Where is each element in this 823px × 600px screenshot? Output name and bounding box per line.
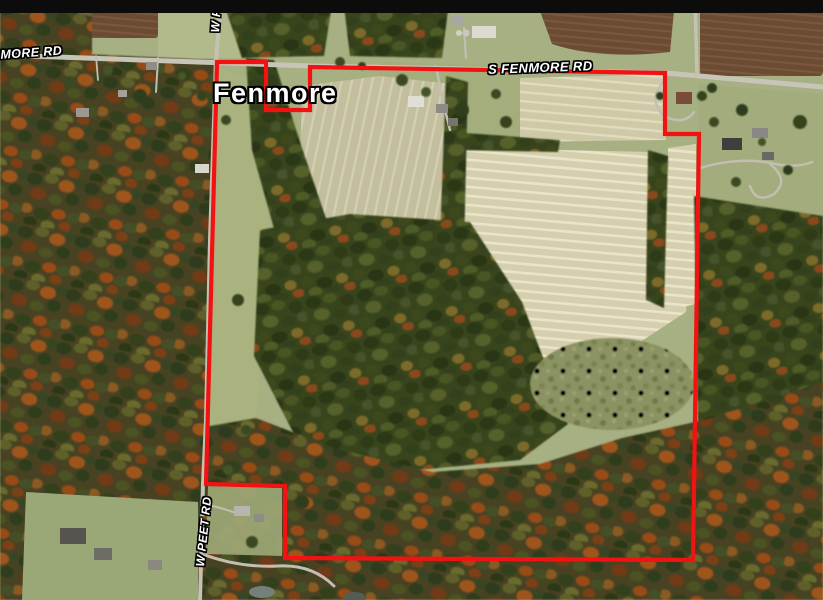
place-label-fenmore: Fenmore [213,80,338,107]
screenshot-root: NMORE RD W PEET Fenmore S FENMORE RD W P… [0,0,823,600]
road-label-s-fenmore-rd: S FENMORE RD [488,59,593,76]
letterbox-top-bar [0,0,823,13]
satellite-map[interactable] [0,0,823,600]
